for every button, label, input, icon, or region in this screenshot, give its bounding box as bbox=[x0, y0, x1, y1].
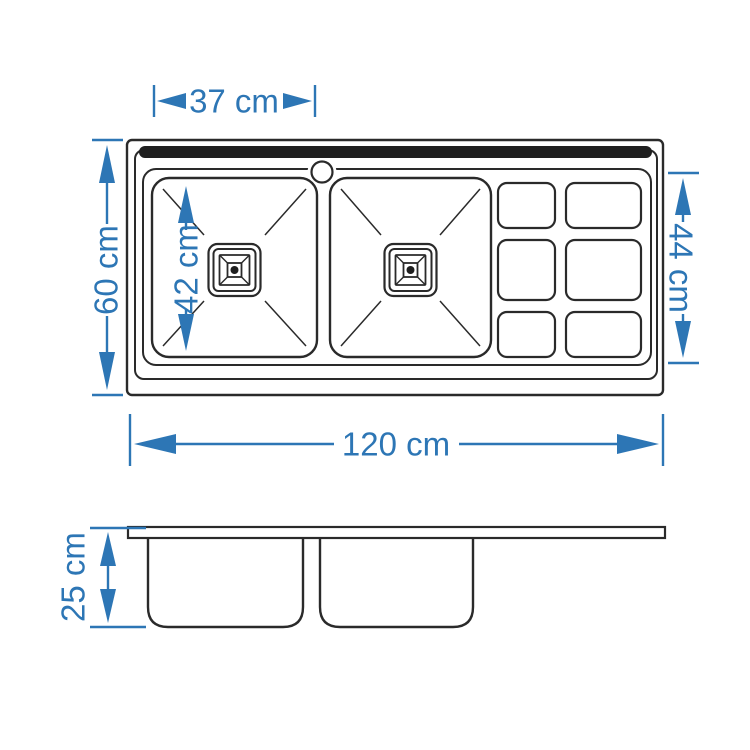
dimension-label: 25 cm bbox=[55, 532, 92, 622]
dimension-label: 60 cm bbox=[88, 225, 125, 315]
left-bowl-profile bbox=[148, 538, 303, 627]
arrow-up-icon bbox=[675, 178, 691, 215]
arrow-up-icon bbox=[99, 145, 115, 183]
right-drain-hole bbox=[407, 266, 415, 274]
arrow-left-icon bbox=[157, 93, 186, 109]
arrow-up-icon bbox=[100, 532, 116, 566]
arrow-down-icon bbox=[100, 589, 116, 623]
dimension-drainboard-depth: 44 cm bbox=[663, 173, 700, 363]
dimension-label: 120 cm bbox=[342, 426, 450, 463]
dimension-bowl-width: 37 cm bbox=[154, 83, 315, 120]
back-ledge bbox=[139, 146, 652, 158]
diagram-svg: 37 cm 60 cm 42 cm 44 cm 120 cm bbox=[0, 0, 750, 750]
left-drain-hole bbox=[231, 266, 239, 274]
side-view bbox=[128, 527, 665, 627]
dimension-label: 44 cm bbox=[663, 223, 700, 313]
right-bowl-profile bbox=[320, 538, 473, 627]
dimension-overall-length: 120 cm bbox=[130, 414, 663, 466]
faucet-hole bbox=[312, 162, 333, 183]
arrow-right-icon bbox=[617, 434, 659, 454]
dimension-bowl-height: 25 cm bbox=[55, 528, 147, 627]
dimension-label: 42 cm bbox=[168, 224, 205, 314]
arrow-down-icon bbox=[99, 352, 115, 390]
arrow-right-icon bbox=[283, 93, 312, 109]
top-view bbox=[127, 140, 663, 395]
dimension-label: 37 cm bbox=[189, 83, 279, 120]
counter-top-profile bbox=[128, 527, 665, 538]
sink-dimension-diagram: 37 cm 60 cm 42 cm 44 cm 120 cm bbox=[0, 0, 750, 750]
dimension-overall-depth: 60 cm bbox=[88, 140, 125, 395]
arrow-down-icon bbox=[675, 321, 691, 358]
arrow-left-icon bbox=[134, 434, 176, 454]
